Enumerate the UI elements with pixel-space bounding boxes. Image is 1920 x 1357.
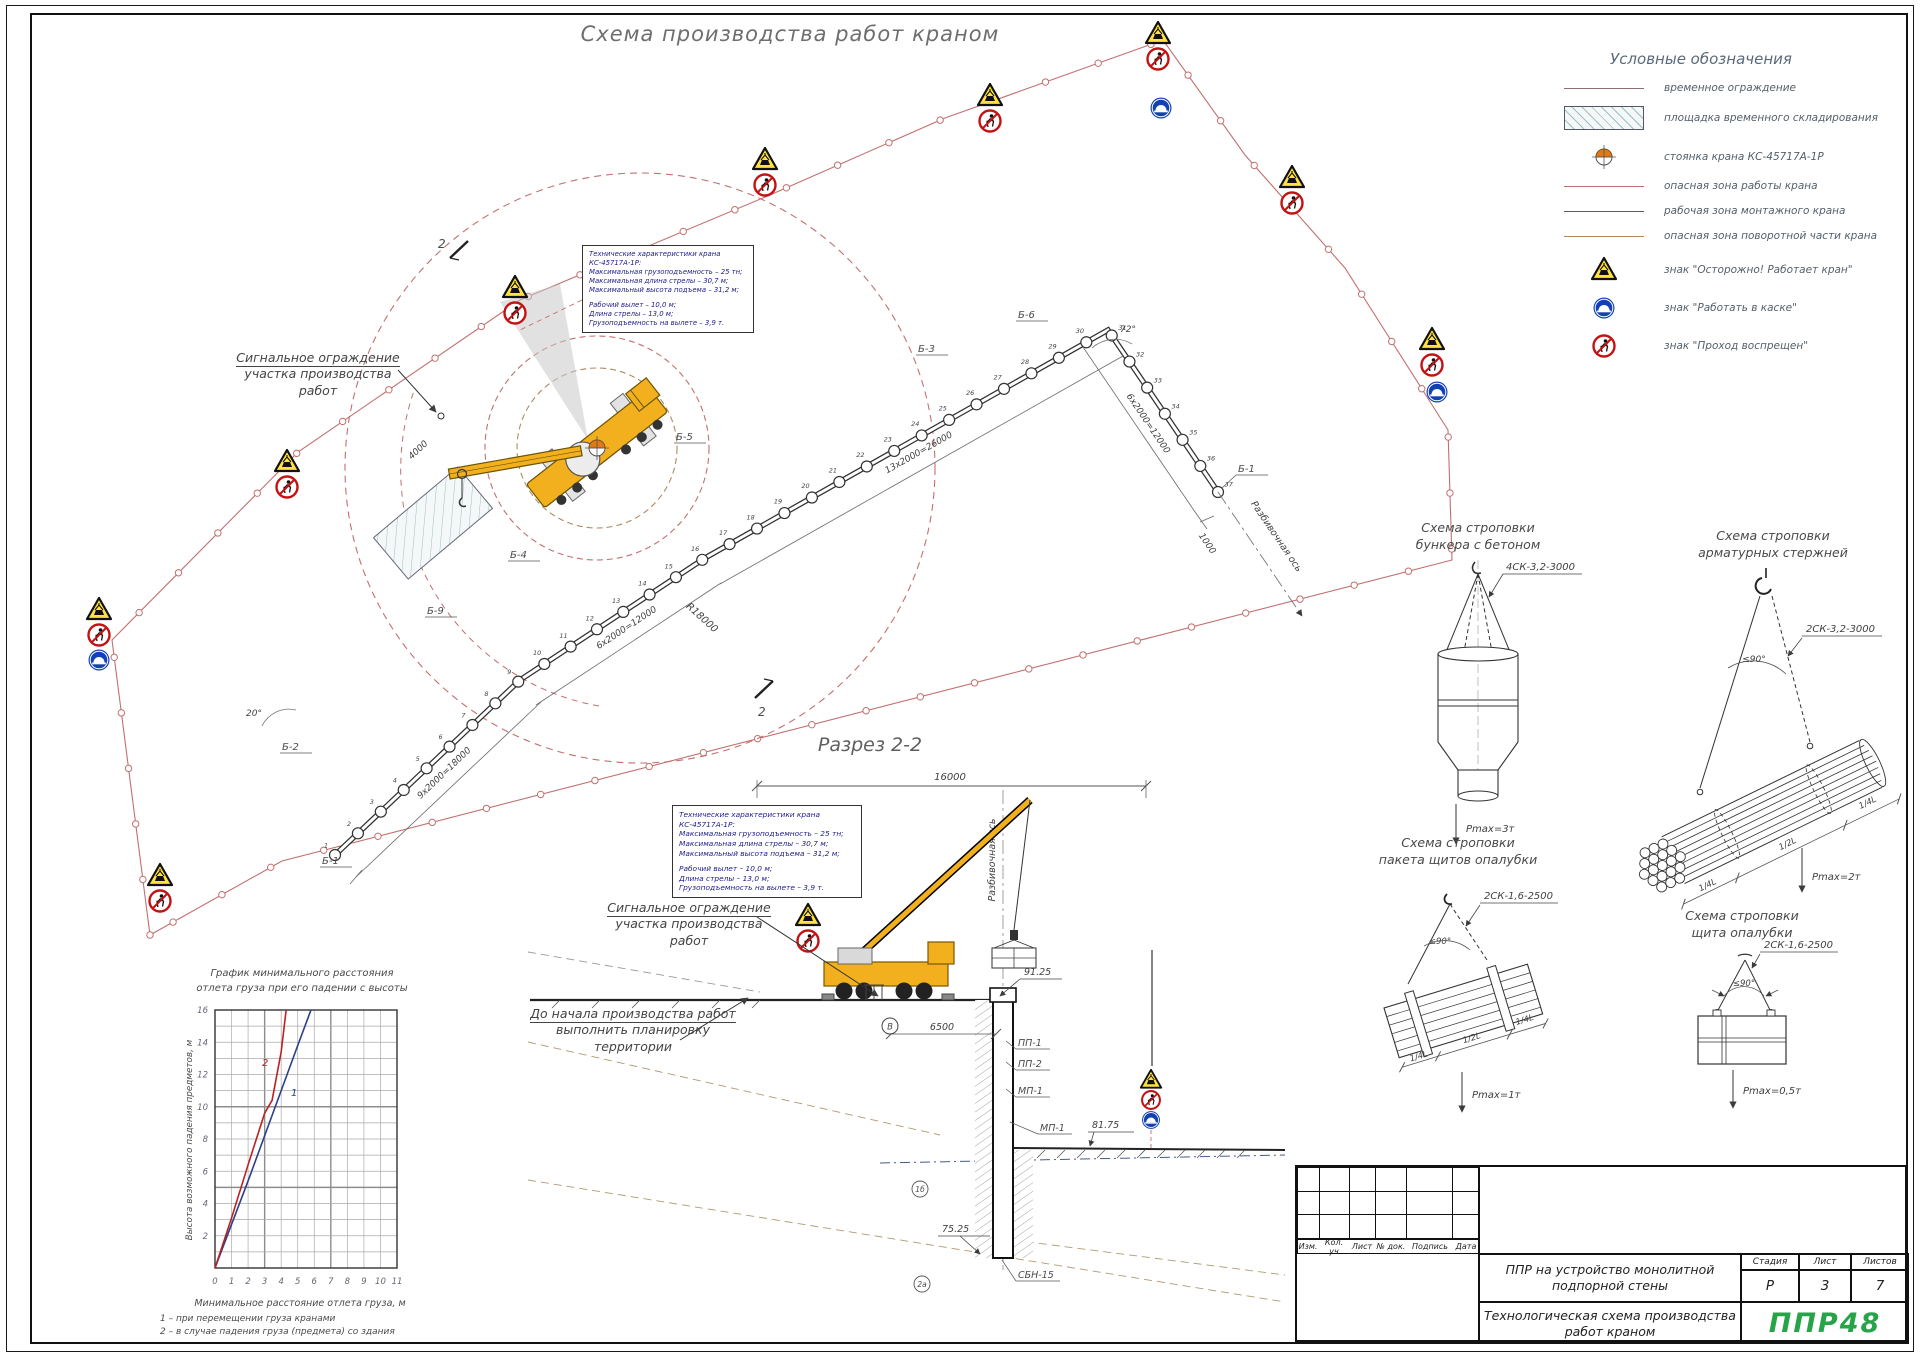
wall-pile	[352, 828, 363, 839]
rigging-rods: Схема строповки арматурных стержней 2СК-…	[1628, 528, 1904, 920]
fence-post	[917, 694, 923, 700]
lower-ground-line	[1013, 1148, 1285, 1150]
wall-pile	[421, 763, 432, 774]
elev-top: 91.25	[1024, 967, 1051, 978]
wall-pile-number: 23	[884, 436, 892, 444]
wall-pile	[1053, 352, 1064, 363]
crane-parking-icon	[1588, 142, 1620, 172]
angle-right-label: 72°	[1120, 325, 1136, 335]
wall-pile-number: 21	[829, 467, 837, 475]
rigging-schemes: Схема строповки бункера с бетоном 4СК-3,…	[1378, 520, 1905, 1112]
fence-post	[1405, 568, 1411, 574]
x-tick-label: 4	[278, 1277, 283, 1287]
fence-post	[147, 932, 153, 938]
chart-note-2: 2 – в случае падения груза (предмета) со…	[160, 1327, 395, 1337]
s4-angle: ≤90°	[1733, 979, 1755, 989]
fence-post	[432, 355, 438, 361]
rigging-panel: Схема строповки щита опалубки ≤90° 2СК-1…	[1685, 908, 1838, 1108]
fence-post	[1185, 72, 1191, 78]
s4-title-1: Схема строповки	[1685, 908, 1798, 923]
wall-pile-number: 29	[1048, 342, 1056, 350]
helmet-sign-icon	[1142, 1111, 1160, 1129]
legend-item: рабочая зона монтажного крана	[1556, 205, 1912, 217]
fence-post	[1243, 610, 1249, 616]
wall-pile-number: 34	[1171, 402, 1179, 410]
wall-pile-number: 16	[691, 545, 699, 553]
no-entry-sign-icon	[89, 625, 110, 646]
fence-post	[1080, 652, 1086, 658]
warning-sign-icon	[503, 276, 527, 297]
plan-fence-callout: Сигнальное ограждение участка производст…	[230, 350, 406, 399]
wall-outline	[335, 330, 1218, 855]
wall-pile-number: 19	[774, 498, 782, 506]
no-entry-sign-icon	[798, 931, 819, 952]
wall-pile-number: 4	[393, 777, 397, 785]
wall-pile-number: 27	[993, 374, 1002, 382]
fence-post	[478, 323, 484, 329]
rod-end-faces	[1629, 833, 1695, 898]
lbl-pile: СБН-15	[1018, 1270, 1054, 1281]
mark-b2: Б-2	[282, 742, 299, 753]
wall-pile-number: 15	[665, 562, 673, 570]
wall-pile	[1142, 382, 1153, 393]
s2-title-1: Схема строповки	[1716, 528, 1829, 543]
legend-item: знак "Работать в каске"	[1556, 292, 1912, 324]
lbl-pp2: ПП-2	[1018, 1059, 1042, 1070]
s2-title-2: арматурных стержней	[1698, 545, 1848, 560]
fence-line-swatch	[1564, 88, 1644, 89]
revision-blank-area	[1479, 1167, 1909, 1254]
project-name-cell: ППР на устройство монолитной подпорной с…	[1479, 1254, 1741, 1302]
angle-left-arc	[262, 709, 296, 726]
fence-post	[293, 450, 299, 456]
warning-sign-icon	[1420, 328, 1444, 349]
x-tick-label: 3	[262, 1277, 267, 1287]
wall-pile-number: 28	[1021, 358, 1029, 366]
x-tick-label: 6	[312, 1277, 318, 1287]
fence-post	[1095, 60, 1101, 66]
s4-title-2: щита опалубки	[1691, 925, 1792, 940]
fence-post	[700, 749, 706, 755]
y-tick-label: 14	[197, 1038, 208, 1048]
crane-spec-box-plan: Технические характеристики крана КС-4571…	[582, 245, 754, 333]
fence-post	[254, 490, 260, 496]
soil-hatch-right	[1013, 1150, 1033, 1258]
legend-item: стоянка крана КС-45717А-1Р	[1556, 142, 1912, 172]
legend-item: знак "Осторожно! Работает кран"	[1556, 254, 1912, 286]
storage-area	[374, 467, 493, 579]
title-block: Изм. Кол. уч Лист № док. Подпись Дата ПП…	[1295, 1165, 1907, 1342]
fence-post	[429, 819, 435, 825]
revision-header-row: Изм. Кол. уч Лист № док. Подпись Дата	[1297, 1239, 1479, 1254]
legend-item: опасная зона работы крана	[1556, 180, 1912, 192]
wall-pile	[565, 641, 576, 652]
wall-pile	[752, 523, 763, 534]
elevation-marks: 91.25 81.75 75.25	[938, 967, 1134, 1254]
cut-label-top: 2	[438, 237, 446, 251]
wall-pile	[375, 806, 386, 817]
wall-pile-number: 33	[1154, 376, 1162, 384]
lbl-mp1b: МП-1	[1040, 1123, 1065, 1134]
wall-dimension-lines	[350, 347, 1214, 884]
x-tick-label: 1	[229, 1277, 234, 1287]
sheet-label-cell: Лист	[1799, 1254, 1851, 1270]
series-label-1: 1	[291, 1088, 297, 1099]
wall-pile	[971, 399, 982, 410]
wall-pile	[670, 572, 681, 583]
lbl-pp1: ПП-1	[1018, 1038, 1042, 1049]
layout-axis-label: Разбивочная ось	[1248, 499, 1304, 574]
no-entry-sign-icon	[150, 891, 171, 912]
fence-post	[170, 919, 176, 925]
warning-sign-icon	[1141, 1070, 1161, 1088]
legend-title: Условные обозначения	[1566, 50, 1836, 68]
no-entry-sign-icon	[1148, 49, 1169, 70]
s3-pmax: Pmax=1т	[1472, 1090, 1522, 1101]
temporary-fence	[111, 40, 1455, 938]
x-tick-label: 2	[245, 1277, 250, 1287]
legend-item: опасная зона поворотной части крана	[1556, 230, 1912, 242]
helmet-sign-icon	[1588, 292, 1620, 324]
legend-item: площадка временного складирования	[1556, 106, 1912, 130]
terrain-lines	[528, 952, 1285, 1302]
wall-pile	[398, 784, 409, 795]
fence-post	[136, 609, 142, 615]
fence-post	[375, 833, 381, 839]
wall-pile-number: 3	[370, 798, 374, 806]
y-tick-label: 12	[197, 1071, 208, 1081]
x-tick-label: 0	[212, 1277, 217, 1287]
s3-title-1: Схема строповки	[1401, 835, 1514, 850]
plan-callout-target	[438, 413, 444, 419]
axis-mark-b: В	[887, 1023, 893, 1033]
wall-pile	[1124, 356, 1135, 367]
fence-post	[886, 139, 892, 145]
x-tick-label: 10	[375, 1277, 386, 1287]
wall-pile	[834, 476, 845, 487]
cut-label-bottom: 2	[758, 705, 766, 719]
no-entry-sign-icon	[980, 111, 1001, 132]
mark-b3: Б-3	[918, 344, 935, 355]
chart-note-1: 1 – при перемещении груза кранами	[160, 1314, 335, 1324]
fence-post	[1351, 582, 1357, 588]
x-tick-label: 11	[392, 1277, 403, 1287]
wall-pile-number: 2	[347, 820, 351, 828]
warning-sign-icon	[148, 864, 172, 885]
no-entry-sign-icon	[1588, 330, 1620, 362]
no-entry-sign-icon	[755, 175, 776, 196]
chart-ylabel: Высота возможного падения предметов, м	[185, 1039, 195, 1240]
fence-post	[1447, 490, 1453, 496]
wall-pile	[1195, 460, 1206, 471]
section-title: Разрез 2-2	[760, 734, 980, 756]
wall-pile-number: 20	[801, 482, 809, 490]
mark-b6: Б-6	[1018, 310, 1035, 321]
wall-pile	[513, 676, 524, 687]
warning-sign-icon	[1146, 22, 1170, 43]
warning-sign-icon	[796, 904, 820, 925]
soil-hatch-left	[975, 1000, 993, 1258]
fence-post	[1217, 118, 1223, 124]
revision-table	[1297, 1167, 1479, 1239]
fence-post	[809, 721, 815, 727]
y-tick-label: 8	[203, 1135, 209, 1145]
wall-pile	[861, 461, 872, 472]
elev-mid: 81.75	[1092, 1120, 1119, 1131]
fence-post	[268, 864, 274, 870]
wall-pile-number: 24	[911, 420, 919, 428]
wall-pile	[944, 414, 955, 425]
radius-label: R18000	[684, 601, 720, 635]
legend: Условные обозначения временное ограждени…	[1556, 50, 1912, 362]
rigging-stack: Схема строповки пакета щитов опалубки 2С…	[1378, 835, 1558, 1112]
s2-angle: ≤90°	[1742, 655, 1766, 665]
hook-icon	[1756, 578, 1771, 594]
fence-post	[971, 680, 977, 686]
series-label-2: 2	[262, 1058, 268, 1069]
drawing-sheet: { "sheet": { "title": "Схема производств…	[0, 0, 1920, 1357]
legend-item: знак "Проход воспрещен"	[1556, 330, 1912, 362]
warning-sign-icon	[87, 598, 111, 619]
s2-sling-label: 2СК-3,2-3000	[1806, 624, 1875, 635]
wall-pile	[490, 698, 501, 709]
dim-4000: 4000	[407, 439, 431, 462]
x-tick-label: 9	[361, 1277, 366, 1287]
wall-pile-number: 35	[1189, 429, 1197, 437]
wall-pile-number: 9	[507, 668, 511, 676]
soil2-label: 2а	[917, 1280, 927, 1289]
wall-pile	[916, 430, 927, 441]
fence-post	[592, 777, 598, 783]
company-logo: ППР48	[1741, 1302, 1909, 1344]
wall-pile-number: 25	[939, 405, 947, 413]
helmet-sign-icon	[1151, 98, 1172, 119]
fence-post	[215, 530, 221, 536]
wall-pile	[1159, 408, 1170, 419]
x-tick-label: 7	[328, 1277, 334, 1287]
wall-pile-number: 5	[416, 755, 420, 763]
fence-post	[175, 570, 181, 576]
no-entry-sign-icon	[1282, 193, 1303, 214]
work-zone-line-swatch	[1564, 211, 1644, 212]
s1-title-1: Схема строповки	[1421, 520, 1534, 535]
wall-pile	[697, 554, 708, 565]
s4-pmax: Pmax=0,5т	[1743, 1086, 1802, 1097]
fence-post	[1251, 162, 1257, 168]
wall-cap	[990, 988, 1016, 1002]
wall-pile	[1177, 434, 1188, 445]
y-tick-label: 16	[197, 1006, 208, 1016]
planning-note: До начала производства работ выполнить п…	[530, 1006, 736, 1055]
s2-f1: 1/4L	[1697, 877, 1718, 894]
wall-pile	[806, 492, 817, 503]
wall-pile	[444, 741, 455, 752]
s2-f2: 1/2L	[1777, 836, 1798, 853]
wall-pile-number: 18	[746, 513, 754, 521]
wall-pile	[999, 383, 1010, 394]
fence-post	[118, 710, 124, 716]
fence-post	[732, 207, 738, 213]
fence-post	[1445, 434, 1451, 440]
no-entry-sign-icon	[1422, 355, 1443, 376]
lbl-mp1: МП-1	[1018, 1086, 1043, 1097]
wall-pile-number: 6	[439, 733, 443, 741]
fence-post	[140, 876, 146, 882]
spec-title: Технические характеристики крана КС-4571…	[679, 810, 855, 829]
fence-post	[1388, 338, 1394, 344]
fence-post	[863, 708, 869, 714]
fence-post	[125, 765, 131, 771]
section-fence-callout: Сигнальное ограждение участка производст…	[598, 900, 780, 949]
x-tick-label: 5	[295, 1277, 300, 1287]
wall-pile-number: 12	[586, 614, 594, 622]
signature-area	[1297, 1254, 1479, 1344]
sheets-label-cell: Листов	[1851, 1254, 1909, 1270]
danger-zone-line-swatch	[1564, 186, 1644, 187]
wall-pile-number: 26	[966, 389, 974, 397]
crane-spec-box-section: Технические характеристики крана КС-4571…	[672, 805, 862, 898]
dim-6500: 6500	[930, 1022, 954, 1033]
wall-pile	[539, 658, 550, 669]
dim-1000: 1000	[1196, 532, 1217, 557]
s1-title-2: бункера с бетоном	[1416, 537, 1541, 552]
sheet-value-cell: 3	[1799, 1270, 1851, 1302]
s2-pmax: Pmax=2т	[1812, 872, 1862, 883]
slew-zone-line-swatch	[1564, 236, 1644, 237]
fence-post	[339, 418, 345, 424]
wall-pile-number: 17	[719, 529, 728, 537]
mark-b1-right: Б-1	[1238, 464, 1255, 475]
wall-pile	[724, 539, 735, 550]
rigging-bunker: Схема строповки бункера с бетоном 4СК-3,…	[1416, 520, 1582, 844]
stage-value-cell: Р	[1741, 1270, 1799, 1302]
wall-pile-number: 30	[1076, 327, 1084, 335]
wall-pile	[1081, 337, 1092, 348]
retaining-wall: 1234567891011121314151617181920212223242…	[324, 324, 1234, 860]
hook-icon	[1445, 894, 1452, 904]
helmet-sign-icon	[89, 650, 110, 671]
s1-sling-label: 4СК-3,2-3000	[1506, 562, 1575, 573]
fence-post	[937, 117, 943, 123]
wall-pile-number: 7	[461, 712, 466, 720]
sheets-value-cell: 7	[1851, 1270, 1909, 1302]
page-title: Схема производства работ краном	[520, 22, 1060, 46]
fence-post	[783, 185, 789, 191]
fence-post	[111, 654, 117, 660]
drawing-name-cell: Технологическая схема производства работ…	[1479, 1302, 1741, 1344]
hook-icon	[1473, 562, 1481, 573]
dim-right: 6х2000=12000	[1124, 392, 1172, 456]
fence-post	[537, 791, 543, 797]
fence-post	[680, 228, 686, 234]
mark-b9: Б-9	[427, 606, 444, 617]
wall-core	[335, 330, 1218, 855]
no-entry-sign-icon	[1142, 1091, 1160, 1109]
wall-pile-number: 22	[856, 451, 864, 459]
wall-pile	[644, 589, 655, 600]
fence-post	[1419, 386, 1425, 392]
fence-post	[1042, 79, 1048, 85]
no-entry-sign-icon	[505, 303, 526, 324]
site-plan: R18000 123456789101112131415161718192021…	[87, 22, 1455, 938]
fence-post	[219, 891, 225, 897]
wall-pile	[591, 624, 602, 635]
angle-left-label: 20°	[246, 709, 262, 719]
fence-post	[646, 763, 652, 769]
storage-hatch-swatch	[1564, 106, 1644, 130]
wall-pile-number: 14	[638, 580, 646, 588]
wall-pile-number: 10	[533, 649, 541, 657]
fence-post	[1297, 596, 1303, 602]
wall-pile-number: 8	[484, 690, 488, 698]
stage-label-cell: Стадия	[1741, 1254, 1799, 1270]
fall-distance-chart: 0123456789101124681012141612 График мини…	[160, 968, 408, 1337]
fence-post	[1358, 291, 1364, 297]
x-tick-label: 8	[345, 1277, 351, 1287]
wall-pile-number: 36	[1207, 455, 1215, 463]
legend-item: временное ограждение	[1556, 82, 1912, 94]
no-entry-sign-icon	[277, 477, 298, 498]
warning-sign-icon	[978, 84, 1002, 105]
wall-pile-number: 13	[612, 597, 620, 605]
fence-line	[112, 40, 1452, 935]
warning-sign-icon	[753, 148, 777, 169]
soil1-label: 1б	[915, 1185, 925, 1194]
s3-sling-label: 2СК-1,6-2500	[1484, 891, 1553, 902]
y-tick-label: 6	[203, 1167, 209, 1177]
fence-post	[132, 821, 138, 827]
wall-pile	[1026, 368, 1037, 379]
mark-b5: Б-5	[676, 432, 693, 443]
dim-16000: 16000	[934, 772, 966, 783]
mark-b1: Б-1	[322, 856, 339, 867]
fence-post	[1188, 624, 1194, 630]
spec-title: Технические характеристики крана КС-4571…	[589, 250, 747, 268]
wall-pile	[467, 719, 478, 730]
helmet-sign-icon	[1427, 382, 1448, 403]
chart-title-line1: График минимального расстояния	[210, 968, 393, 979]
y-tick-label: 4	[203, 1200, 208, 1210]
y-tick-label: 2	[203, 1232, 208, 1242]
wall-pile	[889, 445, 900, 456]
fence-post	[1325, 246, 1331, 252]
chart-title-line2: отлета груза при его падении с высоты	[196, 983, 407, 994]
elev-low: 75.25	[942, 1224, 969, 1235]
fence-post	[1026, 666, 1032, 672]
wall-pile	[779, 508, 790, 519]
y-tick-label: 10	[197, 1103, 208, 1113]
s1-pmax: Pmax=3т	[1466, 824, 1516, 835]
wall-pile	[618, 606, 629, 617]
chart-plot-area: 0123456789101124681012141612	[197, 1006, 402, 1287]
s3-angle: ≤90°	[1429, 937, 1451, 947]
fence-post	[834, 162, 840, 168]
s3-title-2: пакета щитов опалубки	[1379, 852, 1537, 867]
wall-pile-number: 11	[559, 632, 567, 640]
s2-f3: 1/4L	[1857, 794, 1878, 811]
mark-b4: Б-4	[510, 550, 527, 561]
fence-post	[1134, 638, 1140, 644]
chart-xlabel: Минимальное расстояние отлета груза, м	[194, 1298, 405, 1309]
warning-sign-icon	[1588, 254, 1620, 286]
fence-post	[483, 805, 489, 811]
wall-pile-number: 32	[1136, 350, 1144, 358]
wall-pile-number: 1	[324, 842, 328, 850]
s4-sling-label: 2СК-1,6-2500	[1764, 940, 1833, 951]
warning-sign-icon	[1280, 166, 1304, 187]
